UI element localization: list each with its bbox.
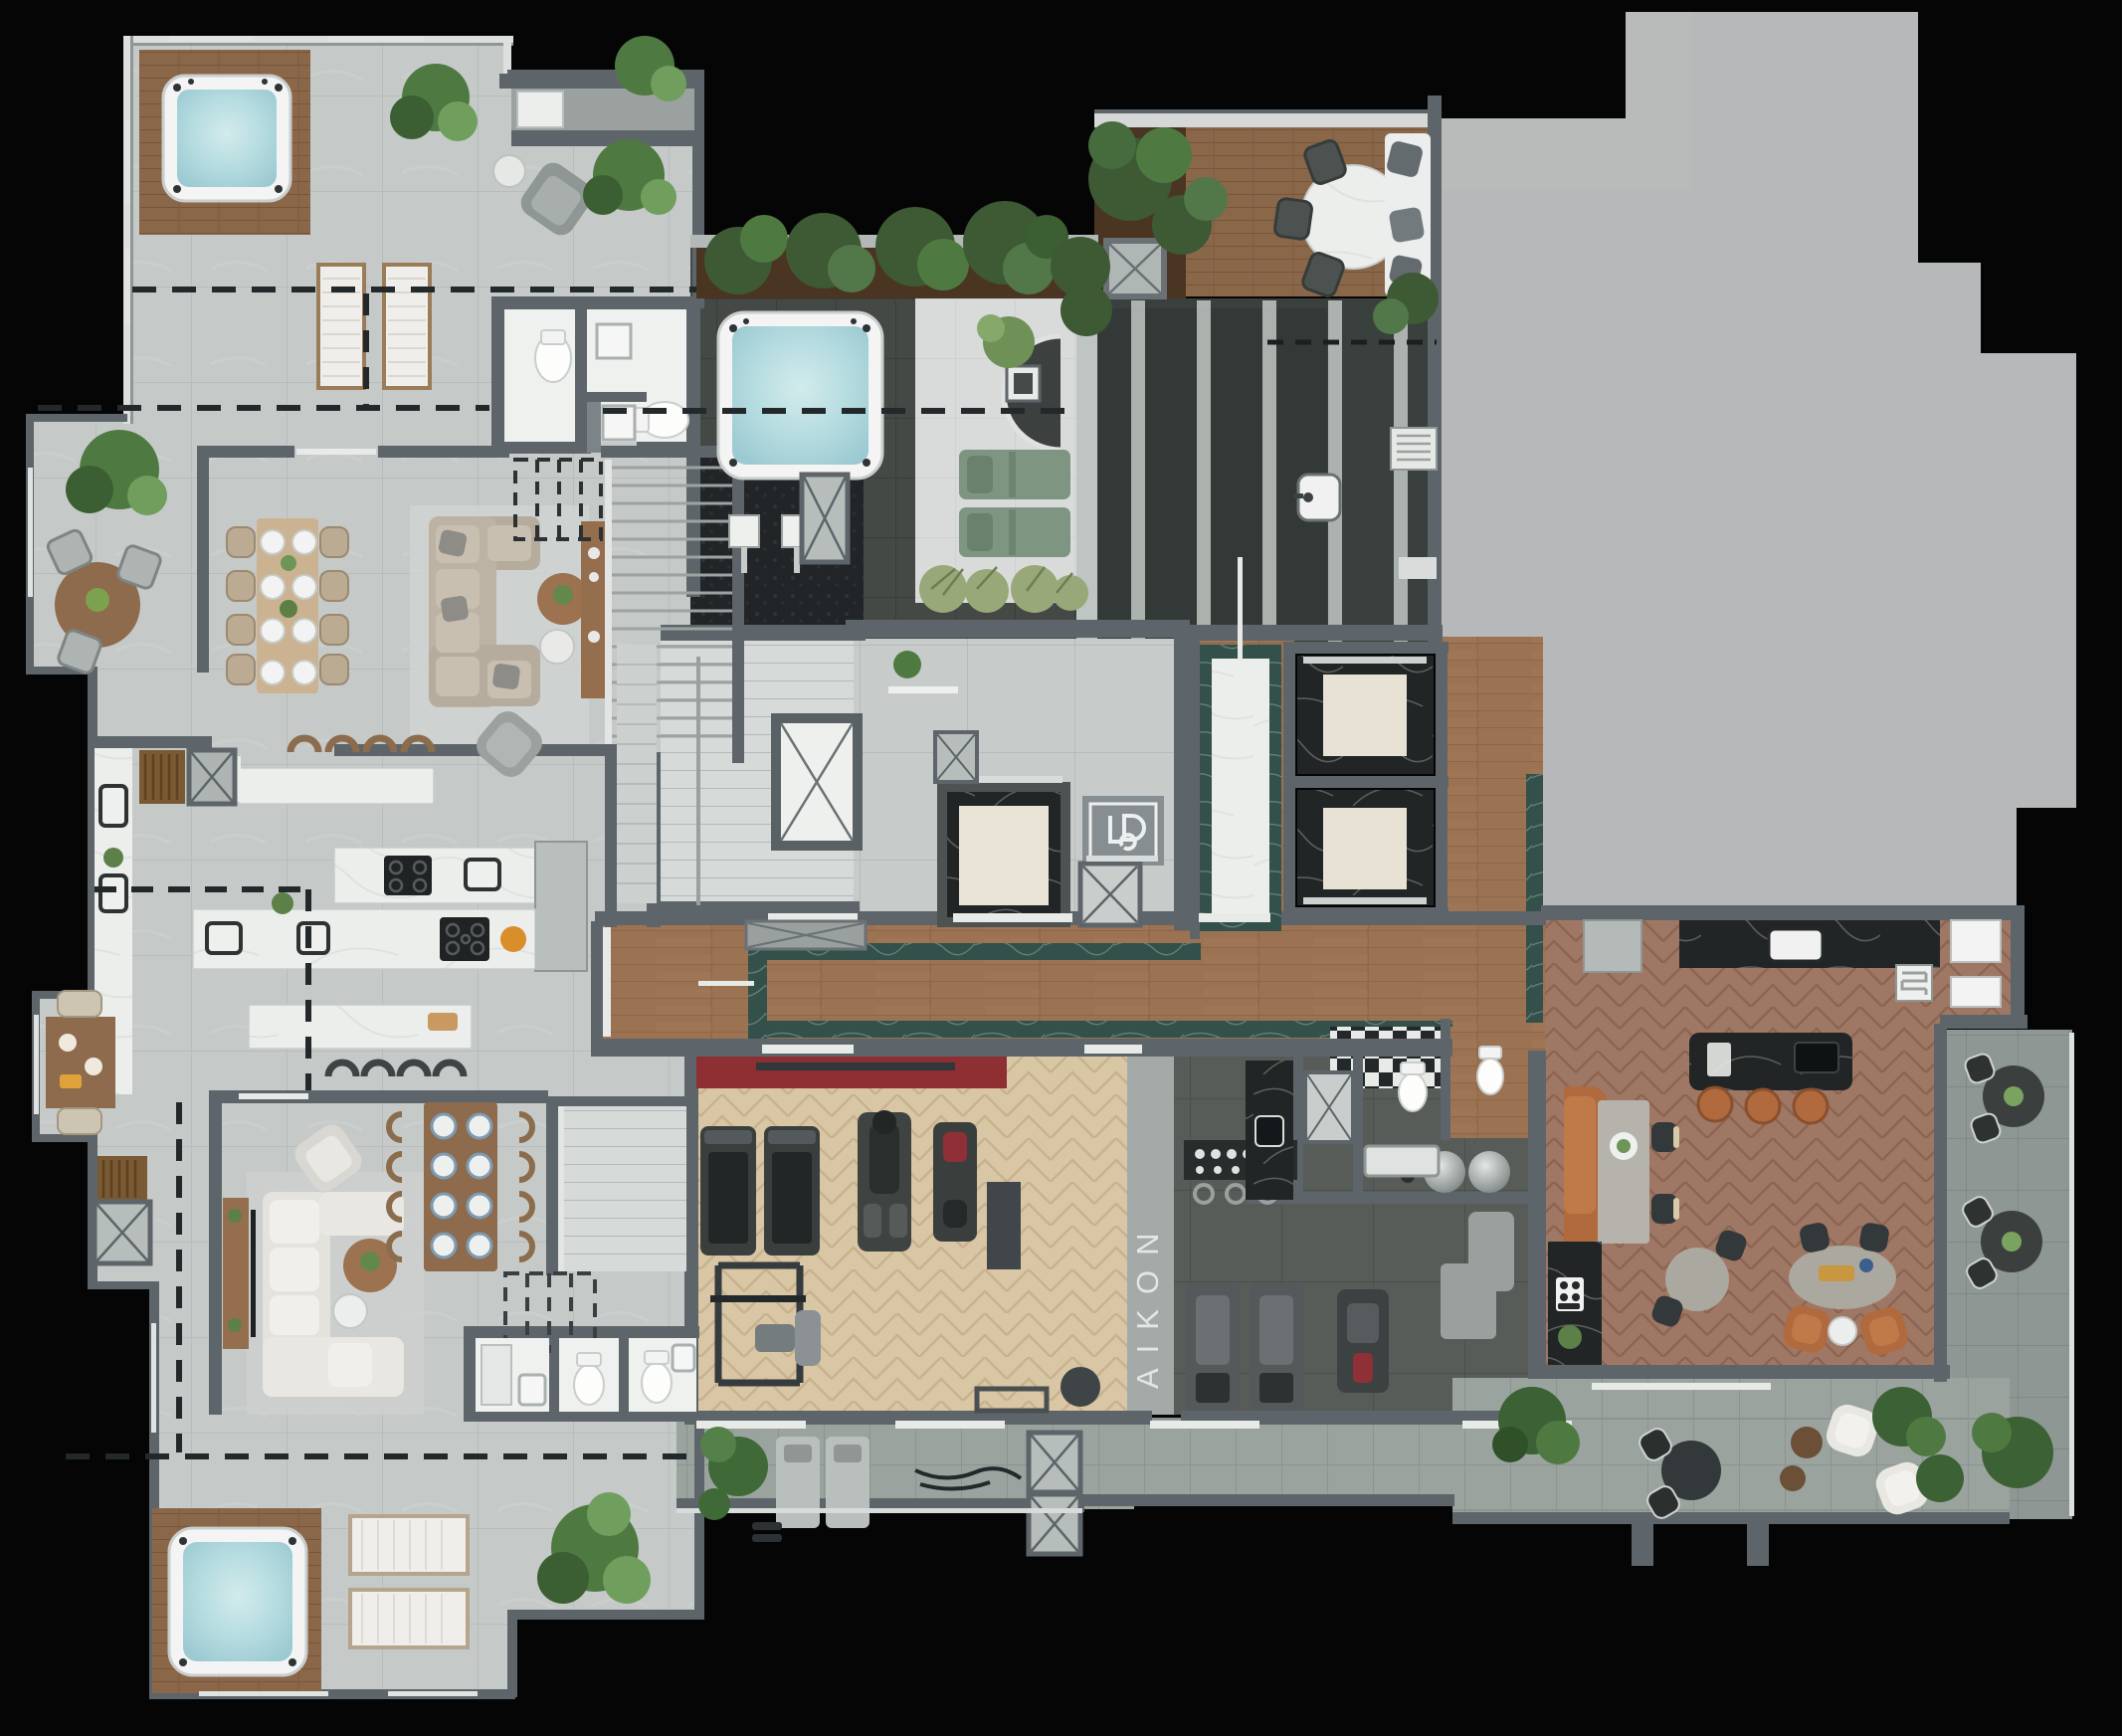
- svg-text:AIKON: AIKON: [1130, 1219, 1165, 1389]
